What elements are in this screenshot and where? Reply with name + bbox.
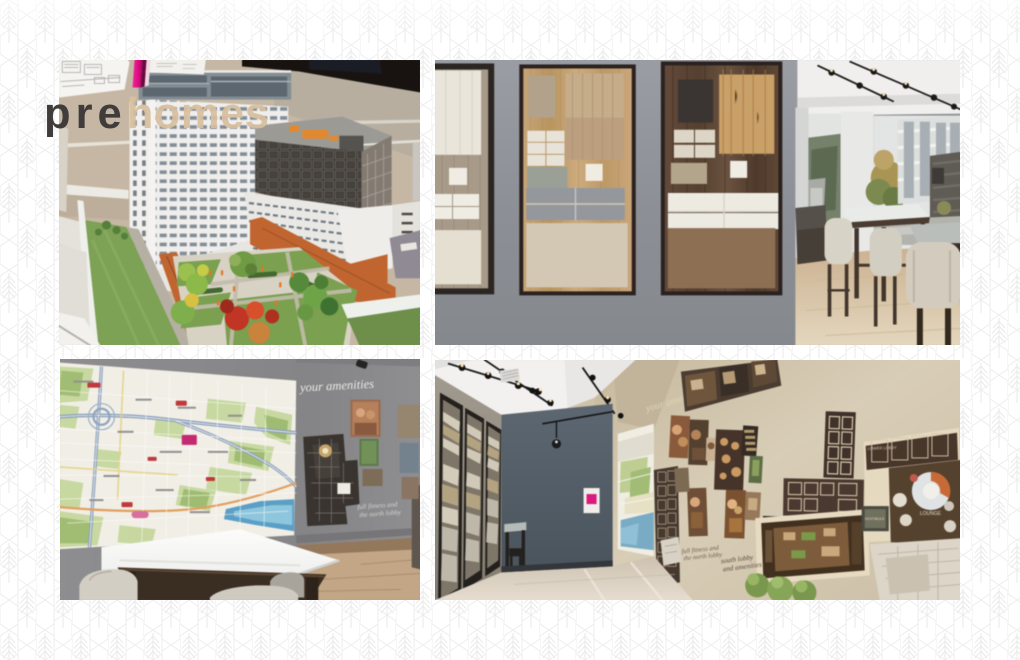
svg-text:LOUNGE: LOUNGE	[920, 511, 942, 517]
svg-text:LOWER LOBBY: LOWER LOBBY	[868, 445, 898, 451]
svg-text:VESTIBULE: VESTIBULE	[865, 517, 885, 521]
